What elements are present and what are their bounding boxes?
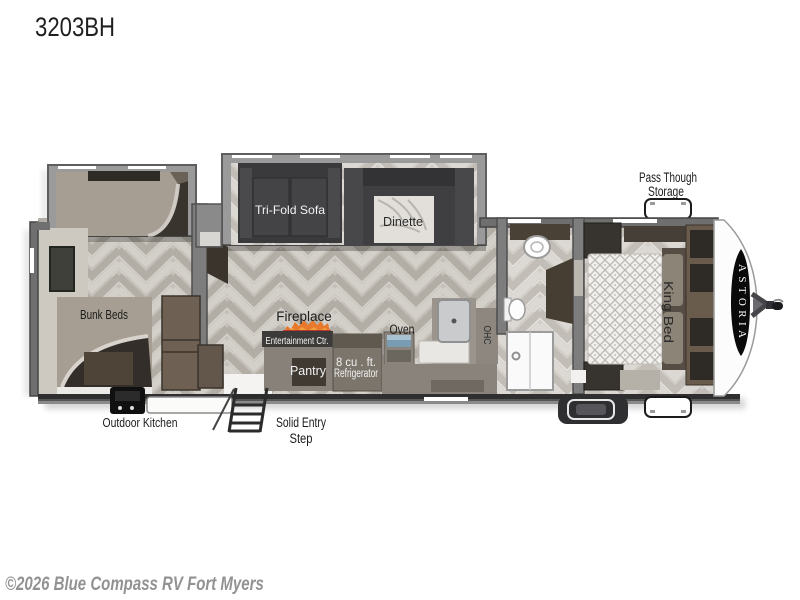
svg-text:Refrigerator: Refrigerator bbox=[334, 368, 378, 380]
svg-text:Step: Step bbox=[290, 431, 313, 446]
svg-text:Pantry: Pantry bbox=[290, 363, 326, 378]
svg-text:Fireplace: Fireplace bbox=[276, 309, 332, 324]
svg-text:Entertainment Ctr.: Entertainment Ctr. bbox=[266, 336, 329, 347]
svg-text:ASTORIA: ASTORIA bbox=[736, 264, 748, 342]
svg-text:Pass Though: Pass Though bbox=[639, 170, 697, 185]
svg-text:Tri-Fold Sofa: Tri-Fold Sofa bbox=[255, 203, 325, 217]
svg-text:Storage: Storage bbox=[648, 184, 684, 199]
svg-text:Dinette: Dinette bbox=[383, 214, 423, 229]
svg-text:Bunk Beds: Bunk Beds bbox=[80, 307, 128, 322]
svg-text:Outdoor Kitchen: Outdoor Kitchen bbox=[103, 416, 178, 430]
svg-text:Solid Entry: Solid Entry bbox=[276, 415, 326, 430]
svg-text:King Bed: King Bed bbox=[661, 281, 675, 343]
svg-text:OHC: OHC bbox=[481, 326, 492, 345]
svg-text:Oven: Oven bbox=[390, 322, 415, 337]
